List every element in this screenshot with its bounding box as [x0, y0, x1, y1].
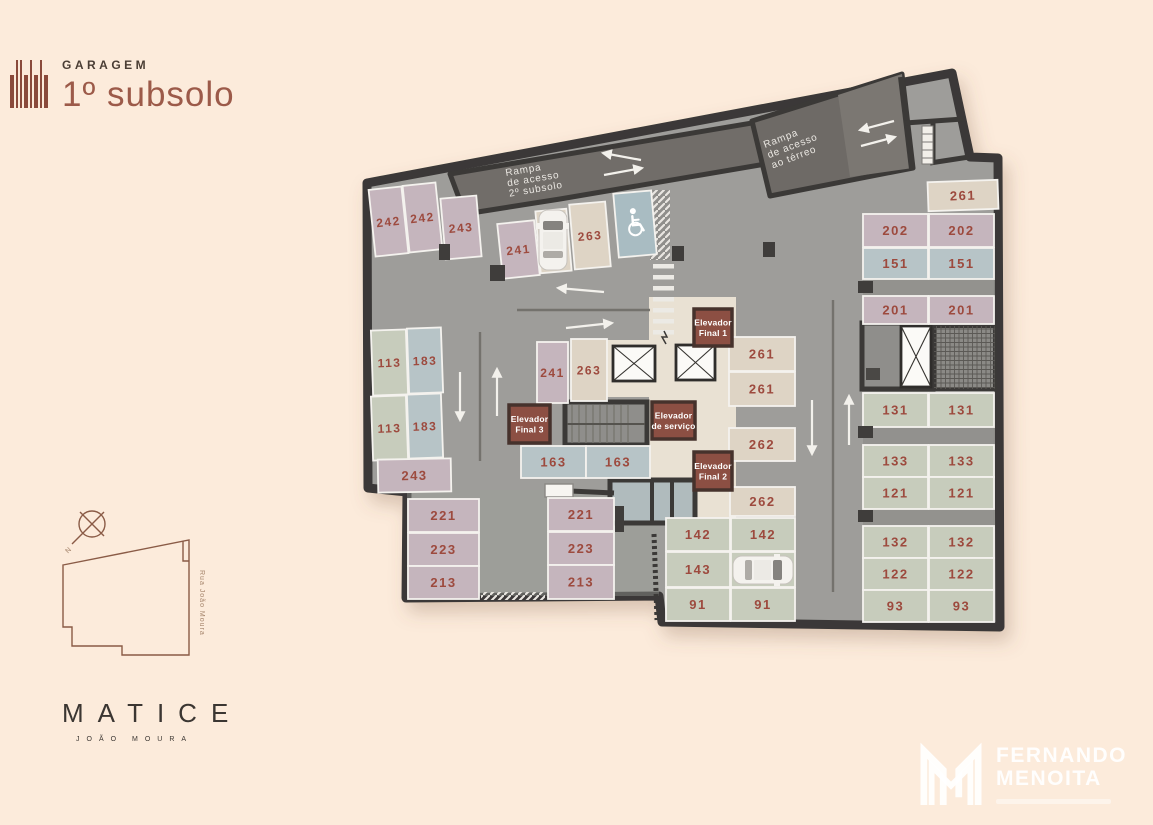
parking-stall: 121: [929, 477, 994, 509]
parking-stall: 151: [863, 248, 928, 279]
stall-number: 223: [430, 542, 456, 557]
parking-stall: 143: [666, 552, 730, 587]
parking-stall: 221: [408, 499, 479, 532]
ladder-icon: [922, 126, 933, 164]
stall-number: 122: [882, 567, 908, 582]
stall-number: 142: [750, 527, 776, 542]
agency-monogram-icon: [920, 741, 982, 807]
stall-number: 213: [430, 575, 456, 590]
car-icon: [733, 554, 793, 586]
parking-stall: 202: [863, 214, 928, 247]
stall-number: 263: [577, 228, 603, 244]
parking-stall: 262: [730, 487, 795, 516]
parking-stall: 131: [863, 393, 928, 427]
car-icon: [537, 210, 569, 270]
stall-number: 263: [577, 364, 602, 378]
parking-stall: 93: [929, 590, 994, 622]
parking-stall: 121: [863, 477, 928, 509]
stall-number: 241: [506, 242, 532, 258]
parking-stall: 163: [586, 446, 650, 478]
parking-stall: 113: [371, 395, 408, 460]
stall-number: 142: [685, 527, 711, 542]
brand-lockup: MATICE JOÃO MOURA: [62, 698, 242, 743]
agency-lockup: FERNANDO MENOITA: [920, 741, 1127, 807]
parking-stall: 262: [729, 428, 795, 461]
stall-number: 151: [882, 256, 908, 271]
brand-subtitle: JOÃO MOURA: [76, 736, 242, 743]
stall-number: 202: [882, 223, 908, 238]
parking-stall: 132: [863, 526, 928, 558]
parking-stall: 133: [929, 445, 994, 477]
brand-name: MATICE: [62, 698, 242, 729]
parking-stall: 263: [569, 202, 611, 270]
parking-stall: 163: [521, 446, 586, 478]
elevator-label: ElevadorFinal 3: [511, 414, 549, 435]
grate-icon: [934, 326, 995, 389]
parking-stall: 213: [408, 566, 479, 599]
parking-stall: 261: [928, 180, 999, 211]
parking-stall: 261: [729, 337, 795, 371]
stall-number: 133: [948, 454, 974, 469]
elevator-machine-room: [862, 323, 995, 389]
parking-stall: 151: [929, 248, 994, 279]
stall-number: 261: [950, 188, 977, 204]
stall-number: 183: [413, 354, 438, 369]
stall-number: 132: [948, 535, 974, 550]
parking-stall: 183: [407, 393, 443, 458]
stall-number: 262: [749, 494, 775, 509]
stall-number: 242: [376, 214, 402, 230]
parking-stall: 223: [548, 532, 614, 565]
parking-stall: 133: [863, 445, 928, 477]
street-label: Rua João Moura: [198, 570, 205, 636]
parking-stall: 183: [407, 327, 443, 393]
stall-number: 202: [948, 223, 974, 238]
stall-number: 261: [749, 347, 775, 362]
parking-stall: 241: [537, 342, 568, 403]
parking-stall: 213: [548, 565, 614, 599]
north-indicator: N: [64, 546, 73, 555]
parking-stall: 122: [863, 558, 928, 590]
elevator-label: ElevadorFinal 1: [694, 318, 732, 339]
stall-number: 163: [540, 455, 566, 470]
stall-number: 143: [685, 562, 711, 577]
parking-stall: 142: [666, 518, 730, 551]
parking-stall: 122: [929, 558, 994, 590]
stall-number: 223: [568, 541, 594, 556]
parking-stall: 113: [371, 329, 408, 395]
stall-number: 151: [948, 256, 974, 271]
parking-stall: 263: [571, 339, 607, 401]
stall-number: 131: [948, 403, 974, 418]
agency-tagline-faint: [996, 799, 1111, 804]
parking-stall: 242: [369, 186, 409, 256]
parking-stall: 91: [731, 588, 795, 621]
agency-name-line2: MENOITA: [996, 767, 1127, 790]
stall-number: 113: [377, 356, 401, 371]
parking-stall: 242: [403, 182, 443, 252]
stall-number: 132: [882, 535, 908, 550]
elevator-box: ElevadorFinal 3: [509, 405, 550, 443]
stall-number: 93: [953, 599, 970, 614]
elevator-box: ElevadorFinal 2: [694, 452, 732, 490]
stall-number: 131: [882, 403, 908, 418]
parking-stall: 243: [378, 458, 452, 492]
siteplan: N Rua João Moura: [63, 511, 205, 655]
stall-number: 91: [689, 597, 706, 612]
stall-number: 242: [410, 210, 436, 226]
parking-stall: 201: [929, 296, 994, 324]
parking-stall: 201: [863, 296, 928, 324]
stall-number: 201: [948, 303, 974, 318]
elevator-box: Elevadorde serviço: [651, 402, 695, 439]
stall-number: 113: [377, 421, 401, 436]
agency-name-line1: FERNANDO: [996, 744, 1127, 767]
stall-number: 163: [605, 455, 631, 470]
parking-stall: 132: [929, 526, 994, 558]
parking-stall: 221: [548, 498, 614, 531]
stall-number: 183: [413, 419, 438, 434]
parking-stall: 223: [408, 533, 479, 566]
stall-number: 122: [948, 567, 974, 582]
stall-number: 221: [430, 508, 456, 523]
stall-number: 241: [540, 366, 565, 380]
stall-number: 121: [948, 486, 974, 501]
stall-number: 243: [401, 468, 427, 483]
stairs-icon: [565, 402, 647, 445]
stall-number: 221: [568, 507, 594, 522]
stall-number: 121: [882, 486, 908, 501]
accessible-stall: [613, 190, 656, 257]
compass-icon: N: [64, 511, 105, 555]
stall-number: 243: [448, 220, 474, 236]
parking-stall: 142: [731, 518, 795, 551]
stall-number: 213: [568, 575, 594, 590]
stall-number: 93: [887, 599, 904, 614]
parking-stall: 261: [729, 372, 795, 406]
elevator-box: ElevadorFinal 1: [694, 309, 732, 346]
parking-stall: 202: [929, 214, 994, 247]
stall-number: 133: [882, 454, 908, 469]
stall-number: 201: [882, 303, 908, 318]
parking-stall: 93: [863, 590, 928, 622]
parking-stall: 131: [929, 393, 994, 427]
elevator-label: ElevadorFinal 2: [694, 461, 732, 482]
stall-number: 262: [749, 437, 775, 452]
storage-box: [545, 484, 573, 497]
stall-number: 261: [749, 382, 775, 397]
parking-stall: 91: [666, 588, 730, 621]
stall-number: 91: [754, 597, 771, 612]
elevator-label: Elevadorde serviço: [651, 411, 695, 432]
